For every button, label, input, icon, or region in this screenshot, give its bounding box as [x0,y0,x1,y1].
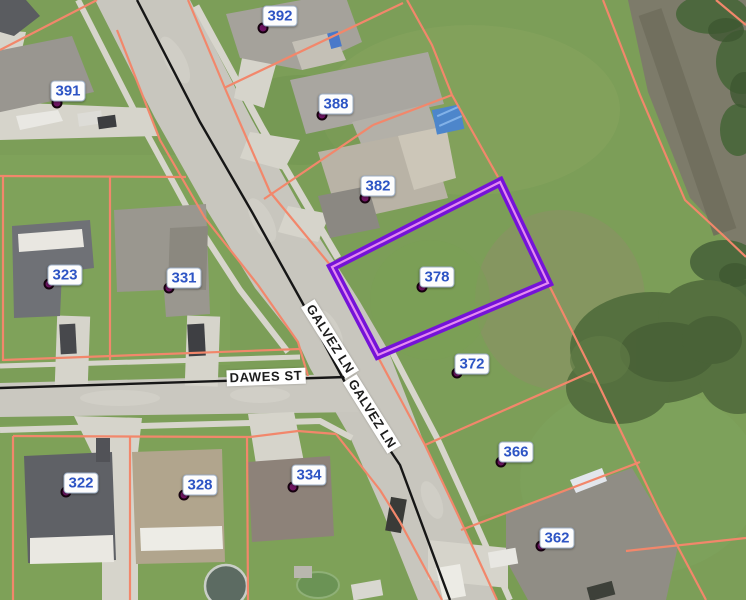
parcel-label-328[interactable]: 328 [182,475,217,496]
parcel-label-388[interactable]: 388 [318,94,353,115]
map-viewport[interactable]: 392 391 388 382 378 372 366 362 323 331 … [0,0,746,600]
parcel-label-323[interactable]: 323 [47,265,82,286]
parcel-label-391[interactable]: 391 [50,81,85,102]
parcel-label-392[interactable]: 392 [262,6,297,27]
parcel-label-322[interactable]: 322 [63,473,98,494]
label-overlay: 392 391 388 382 378 372 366 362 323 331 … [0,0,746,600]
parcel-label-382[interactable]: 382 [360,176,395,197]
street-label-galvez-ln-2: GALVEZ LN [343,374,401,454]
parcel-label-378[interactable]: 378 [419,267,454,288]
parcel-label-334[interactable]: 334 [291,465,326,486]
parcel-label-331[interactable]: 331 [166,268,201,289]
street-label-galvez-ln-1: GALVEZ LN [301,299,359,379]
parcel-label-366[interactable]: 366 [498,442,533,463]
parcel-label-362[interactable]: 362 [539,528,574,549]
parcel-label-372[interactable]: 372 [454,354,489,375]
street-label-dawes-st: DAWES ST [226,368,305,387]
